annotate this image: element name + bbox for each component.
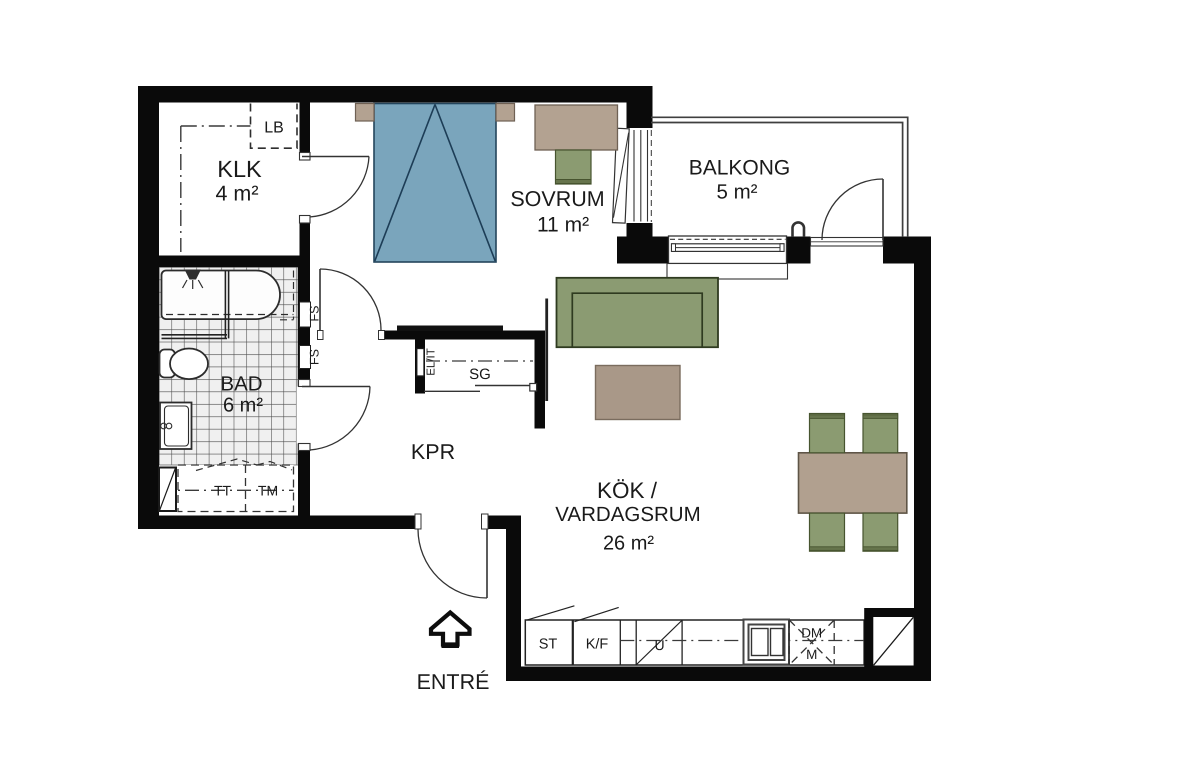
svg-text:5 m²: 5 m²: [717, 181, 758, 204]
svg-text:4 m²: 4 m²: [216, 182, 259, 206]
svg-text:M: M: [806, 647, 817, 662]
svg-text:EL/IT: EL/IT: [426, 348, 438, 375]
svg-text:KPR: KPR: [411, 440, 455, 464]
svg-text:KÖK /: KÖK /: [597, 478, 658, 503]
svg-text:BALKONG: BALKONG: [689, 157, 791, 180]
svg-text:SG: SG: [469, 366, 491, 383]
svg-text:BAD: BAD: [220, 373, 262, 396]
svg-text:FS: FS: [308, 349, 322, 365]
svg-text:U: U: [654, 637, 664, 653]
svg-text:ST: ST: [539, 637, 558, 653]
svg-text:VARDAGSRUM: VARDAGSRUM: [555, 503, 700, 526]
svg-text:26 m²: 26 m²: [603, 533, 654, 555]
svg-text:K/F: K/F: [586, 637, 609, 653]
svg-text:TT: TT: [214, 483, 232, 499]
svg-text:ENTRÉ: ENTRÉ: [417, 670, 490, 694]
svg-text:TM: TM: [258, 483, 278, 499]
svg-text:DM: DM: [801, 626, 822, 641]
svg-text:6 m²: 6 m²: [223, 395, 263, 417]
svg-text:KLK: KLK: [217, 156, 262, 182]
svg-text:11 m²: 11 m²: [537, 214, 589, 237]
svg-text:SOVRUM: SOVRUM: [510, 187, 604, 211]
svg-text:LB: LB: [264, 120, 284, 137]
